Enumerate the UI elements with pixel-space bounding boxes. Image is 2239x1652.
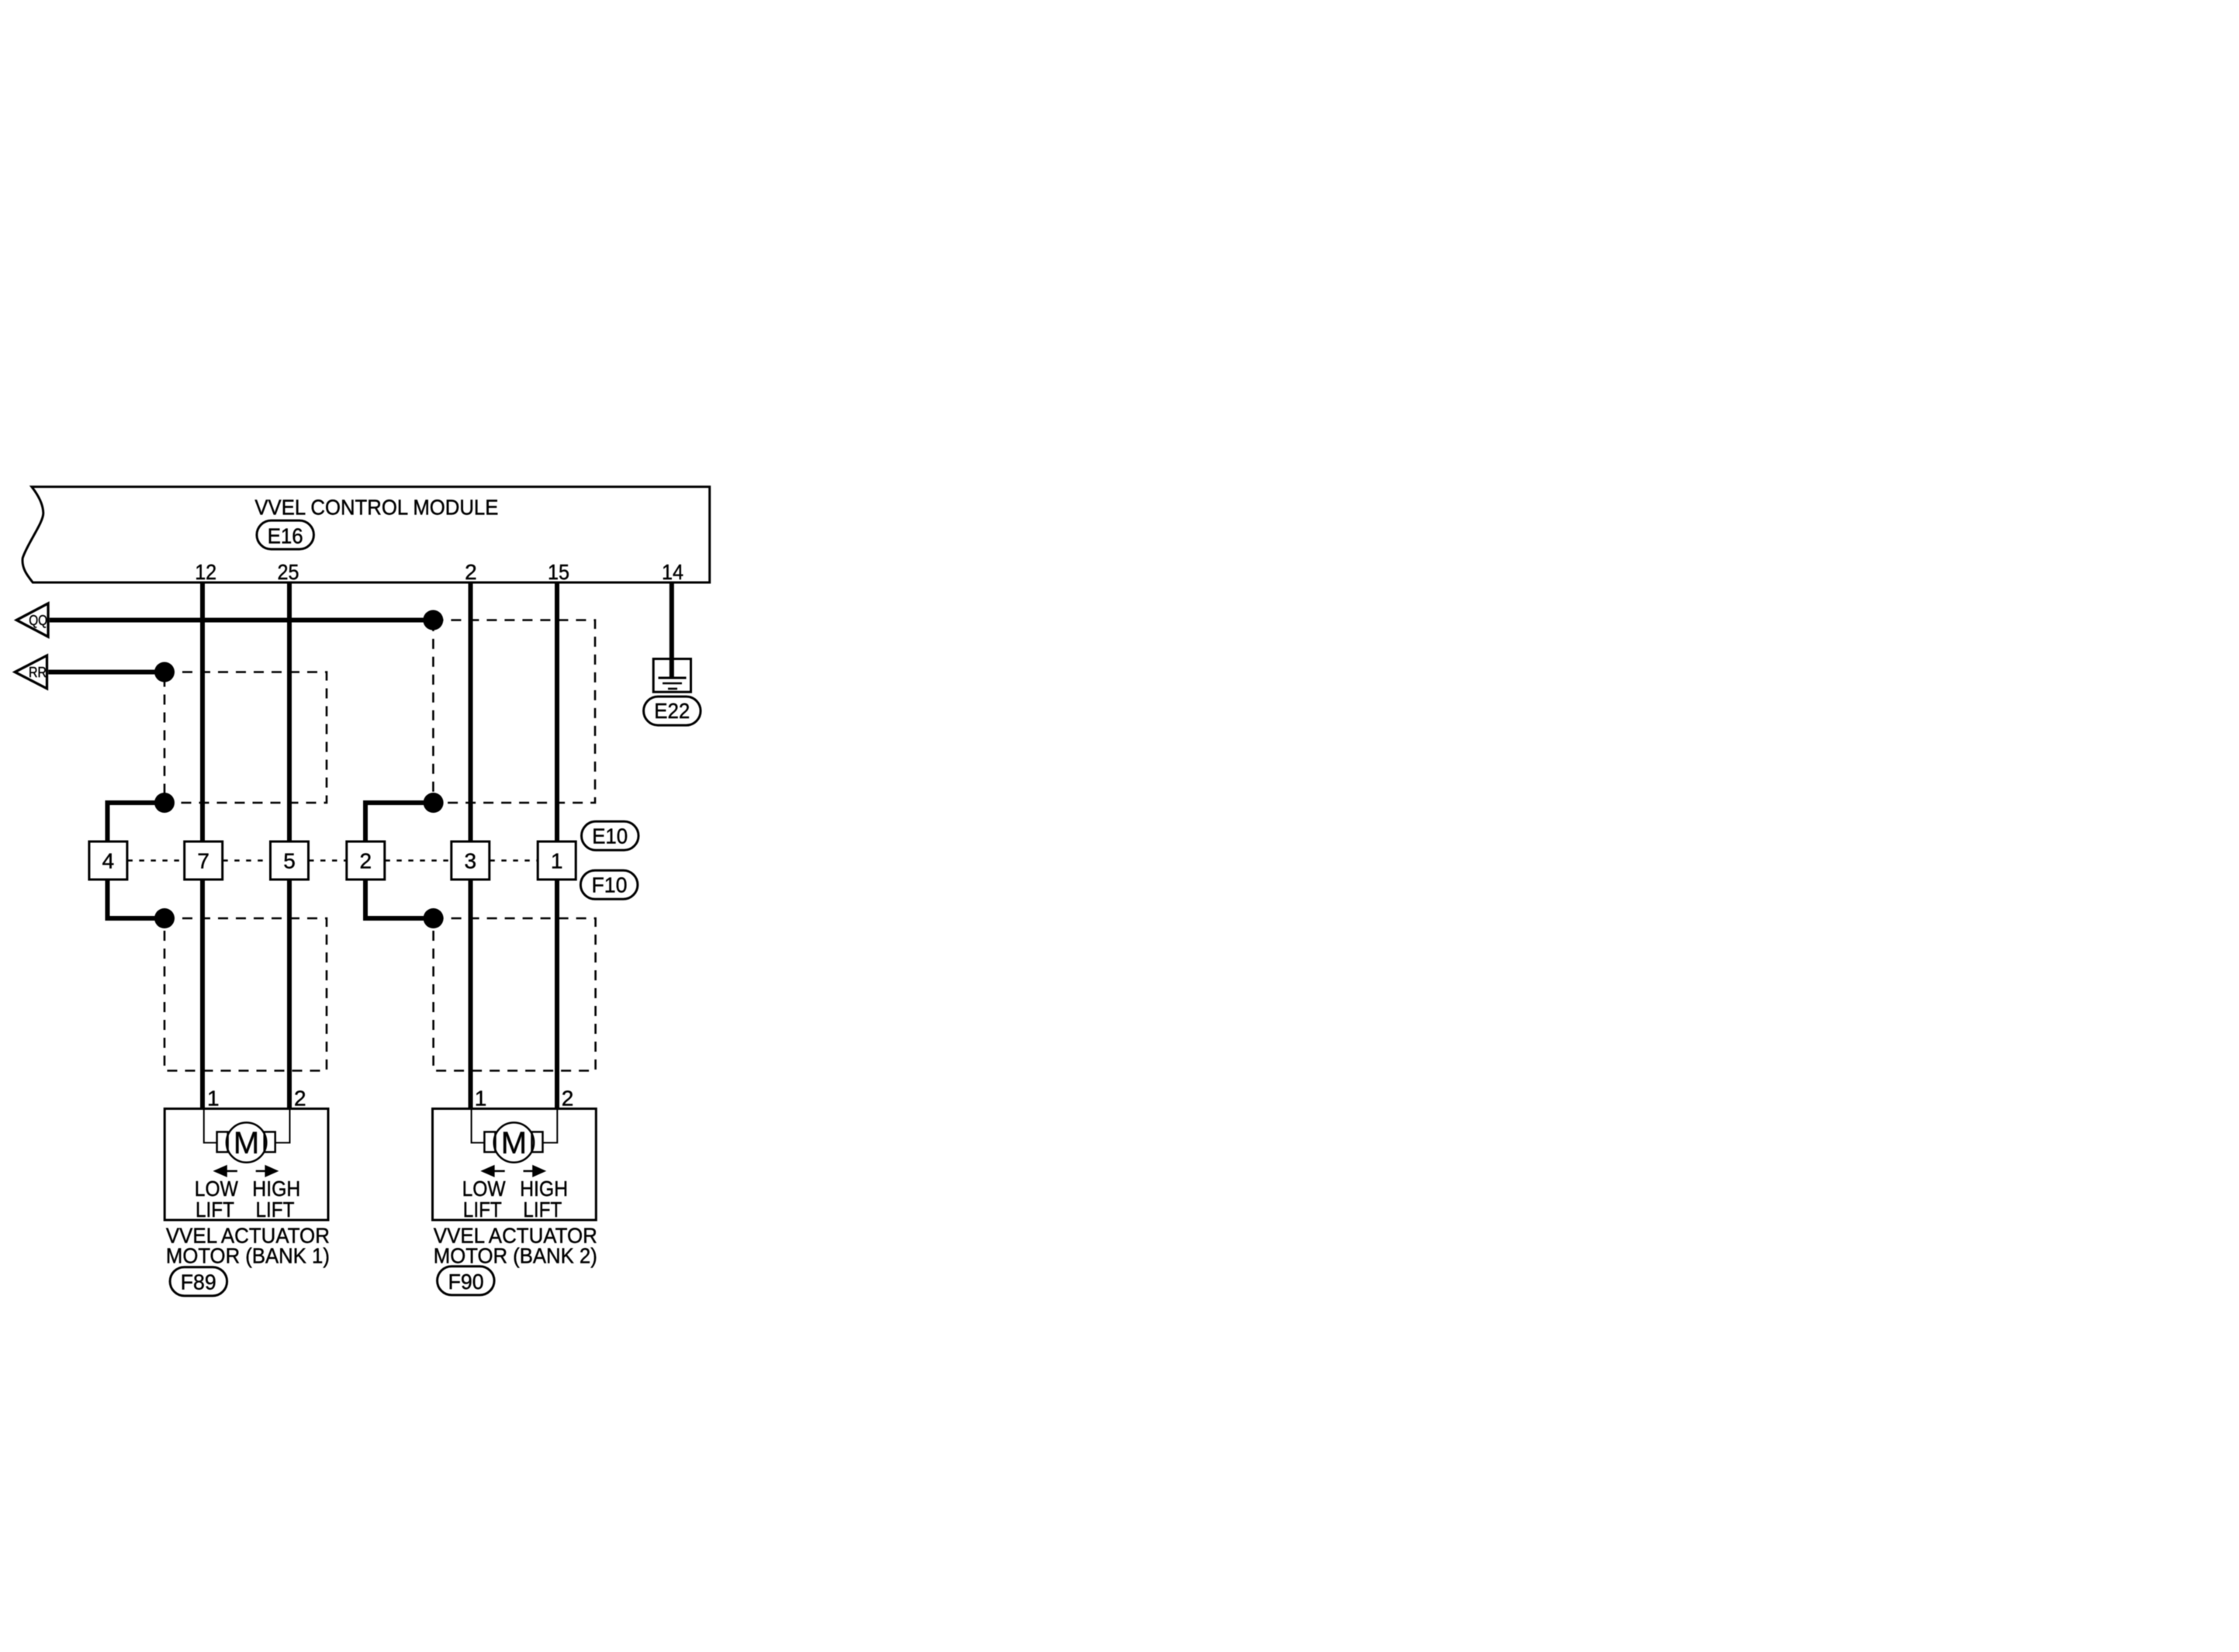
svg-text:7: 7	[197, 849, 209, 873]
svg-text:15: 15	[548, 560, 569, 584]
svg-text:M: M	[501, 1126, 527, 1160]
svg-text:1: 1	[551, 849, 563, 873]
svg-text:12: 12	[195, 560, 216, 584]
svg-text:E22: E22	[654, 699, 690, 723]
svg-text:2: 2	[360, 849, 372, 873]
svg-text:5: 5	[283, 849, 296, 873]
svg-text:4: 4	[102, 849, 115, 873]
svg-text:1: 1	[207, 1086, 220, 1110]
svg-text:MOTOR (BANK 1): MOTOR (BANK 1)	[166, 1244, 330, 1268]
svg-text:2: 2	[562, 1086, 574, 1110]
svg-text:M: M	[234, 1126, 259, 1160]
svg-text:14: 14	[662, 560, 683, 584]
svg-text:MOTOR (BANK 2): MOTOR (BANK 2)	[434, 1244, 597, 1268]
svg-text:2: 2	[465, 560, 477, 584]
svg-text:25: 25	[278, 560, 299, 584]
svg-text:2: 2	[294, 1086, 306, 1110]
svg-text:F10: F10	[592, 873, 628, 897]
svg-text:LIFT: LIFT	[256, 1198, 295, 1222]
svg-text:E16: E16	[268, 524, 303, 548]
svg-text:RR: RR	[29, 665, 47, 680]
svg-text:E10: E10	[592, 824, 628, 848]
svg-text:QQ: QQ	[29, 613, 47, 628]
svg-text:LIFT: LIFT	[463, 1198, 502, 1222]
svg-text:F89: F89	[181, 1270, 216, 1294]
svg-text:VVEL CONTROL MODULE: VVEL CONTROL MODULE	[254, 496, 498, 520]
svg-text:LIFT: LIFT	[196, 1198, 234, 1222]
svg-text:3: 3	[465, 849, 477, 873]
svg-text:1: 1	[475, 1086, 487, 1110]
svg-text:F90: F90	[448, 1270, 484, 1294]
svg-text:LIFT: LIFT	[523, 1198, 562, 1222]
